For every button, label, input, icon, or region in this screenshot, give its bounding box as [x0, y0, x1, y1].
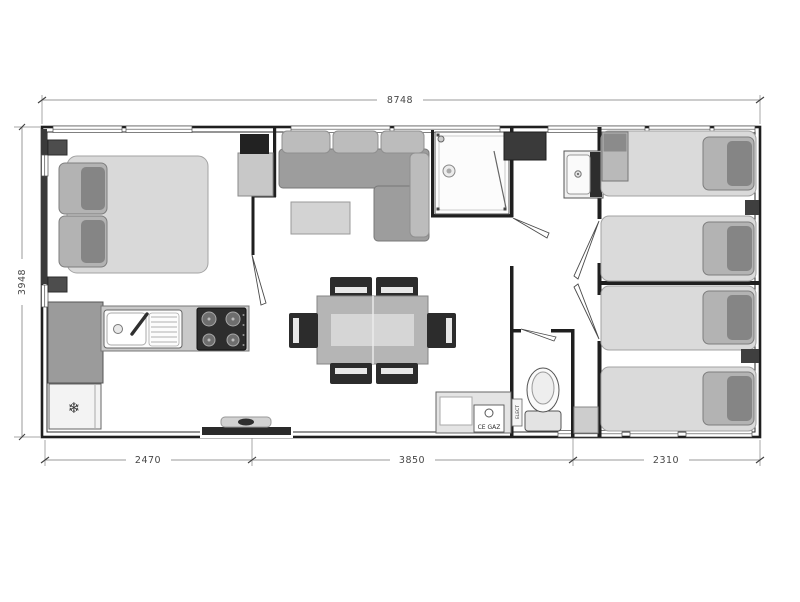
dimension-left: 3948 — [14, 124, 40, 440]
sink-drain — [114, 325, 123, 334]
door-handle — [238, 419, 254, 426]
tv-cabinet — [238, 153, 273, 196]
gas-hob — [197, 308, 246, 350]
window — [53, 126, 122, 133]
pillow — [703, 291, 754, 344]
floor-plan-page: ❄ — [0, 0, 800, 602]
fridge-snowflake-icon: ❄ — [68, 399, 81, 417]
bedroom-partition-lower — [252, 196, 255, 255]
bed-head-cabinet — [602, 132, 628, 181]
overall-width-dimension: 8748 — [387, 95, 413, 106]
toilet — [525, 368, 561, 431]
toilet-tank — [525, 411, 561, 431]
electrical-panel-label: ELECT — [515, 405, 521, 419]
wc-wall-stub — [551, 329, 574, 333]
pillow — [59, 163, 107, 214]
electrical-panel: ELECT — [512, 399, 522, 426]
sink-basin — [107, 313, 146, 345]
left-wall-panel — [41, 176, 47, 284]
pillow — [703, 137, 754, 190]
cabinet-panel — [440, 397, 472, 425]
dimension-bottom: 2470 3850 2310 — [41, 438, 764, 466]
shower-room — [435, 132, 509, 214]
hall-end-cabinet — [574, 407, 598, 433]
bedroom-width-dimension: 2470 — [135, 455, 161, 466]
hall-cabinet — [504, 132, 546, 160]
floor-plan-drawing: ❄ — [0, 0, 800, 602]
pillow — [703, 222, 754, 275]
sofa-cushion — [333, 131, 378, 153]
pillow — [59, 216, 107, 267]
living-width-dimension: 3850 — [399, 455, 425, 466]
window — [42, 285, 49, 307]
tv — [240, 134, 269, 154]
bedrooms-width-dimension: 2310 — [653, 455, 679, 466]
left-wall-panel — [41, 129, 47, 156]
overall-height-dimension: 3948 — [17, 269, 28, 295]
window — [126, 126, 192, 133]
shower-bottom-wall — [431, 214, 513, 218]
washbasin — [564, 151, 603, 198]
kitchen-sink — [104, 310, 182, 348]
window — [42, 155, 49, 176]
pillow — [703, 372, 754, 425]
door-panel — [202, 427, 291, 435]
dimension-top: 8748 — [38, 93, 764, 124]
shower-left-wall — [431, 130, 434, 217]
nightstand — [48, 277, 67, 292]
wall-heater — [745, 200, 759, 215]
sofa-cushion — [282, 131, 330, 153]
bedrooms-divider-wall — [601, 281, 760, 285]
coffee-table — [291, 202, 350, 234]
wall-heater — [741, 349, 759, 363]
gas-heater-label: CE GAZ — [478, 424, 501, 431]
gas-heater: CE GAZ — [474, 405, 504, 432]
fridge: ❄ — [49, 384, 101, 429]
wardrobe — [48, 302, 103, 383]
washbasin-splash-panel — [590, 152, 602, 197]
right-bedrooms — [601, 131, 759, 431]
sofa-cushion — [410, 153, 429, 237]
wc-wall-stub — [512, 329, 521, 333]
sofa-cushion — [381, 131, 424, 153]
heater-cabinet: CE GAZ — [436, 392, 511, 433]
nightstand — [48, 140, 67, 155]
shower-head — [438, 136, 444, 142]
